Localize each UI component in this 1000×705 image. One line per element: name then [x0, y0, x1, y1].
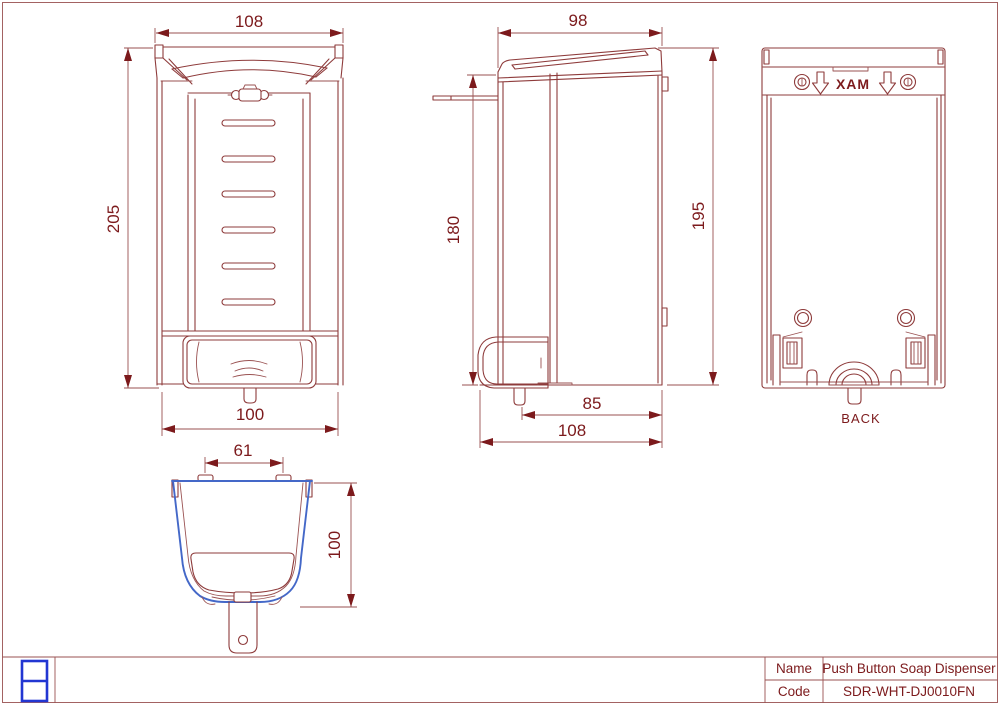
top-view: 61 100 [172, 441, 357, 653]
front-dim-width-bottom: 100 [236, 405, 264, 424]
max-fill-label: XAM [836, 76, 870, 92]
front-dim-height: 205 [104, 205, 123, 233]
top-dim-depth: 100 [325, 531, 344, 559]
back-view-caption: BACK [841, 411, 880, 426]
title-block-name-label: Name [776, 661, 812, 676]
company-logo-icon [22, 661, 47, 701]
title-block: Name Push Button Soap Dispenser Code SDR… [3, 657, 998, 703]
side-dim-nozzle-depth: 85 [583, 394, 602, 413]
side-dim-front-height: 180 [444, 216, 463, 244]
technical-drawing-canvas: 108 205 100 [0, 0, 1000, 705]
front-view: 108 205 100 [104, 12, 343, 436]
title-block-code-label: Code [778, 684, 810, 699]
top-dim-slot-width: 61 [234, 441, 253, 460]
down-arrow-icon [813, 72, 829, 94]
front-dim-width-top: 108 [235, 12, 263, 31]
down-arrow-icon [880, 72, 896, 94]
back-view: XAM BACK [762, 48, 945, 426]
side-view: 98 180 195 85 108 [433, 11, 719, 448]
page-border [3, 3, 998, 703]
title-block-code-value: SDR-WHT-DJ0010FN [843, 684, 975, 699]
title-block-name-value: Push Button Soap Dispenser [822, 661, 996, 676]
side-dim-back-height: 195 [689, 202, 708, 230]
side-dim-depth-top: 98 [569, 11, 588, 30]
side-dim-total-depth: 108 [558, 421, 586, 440]
